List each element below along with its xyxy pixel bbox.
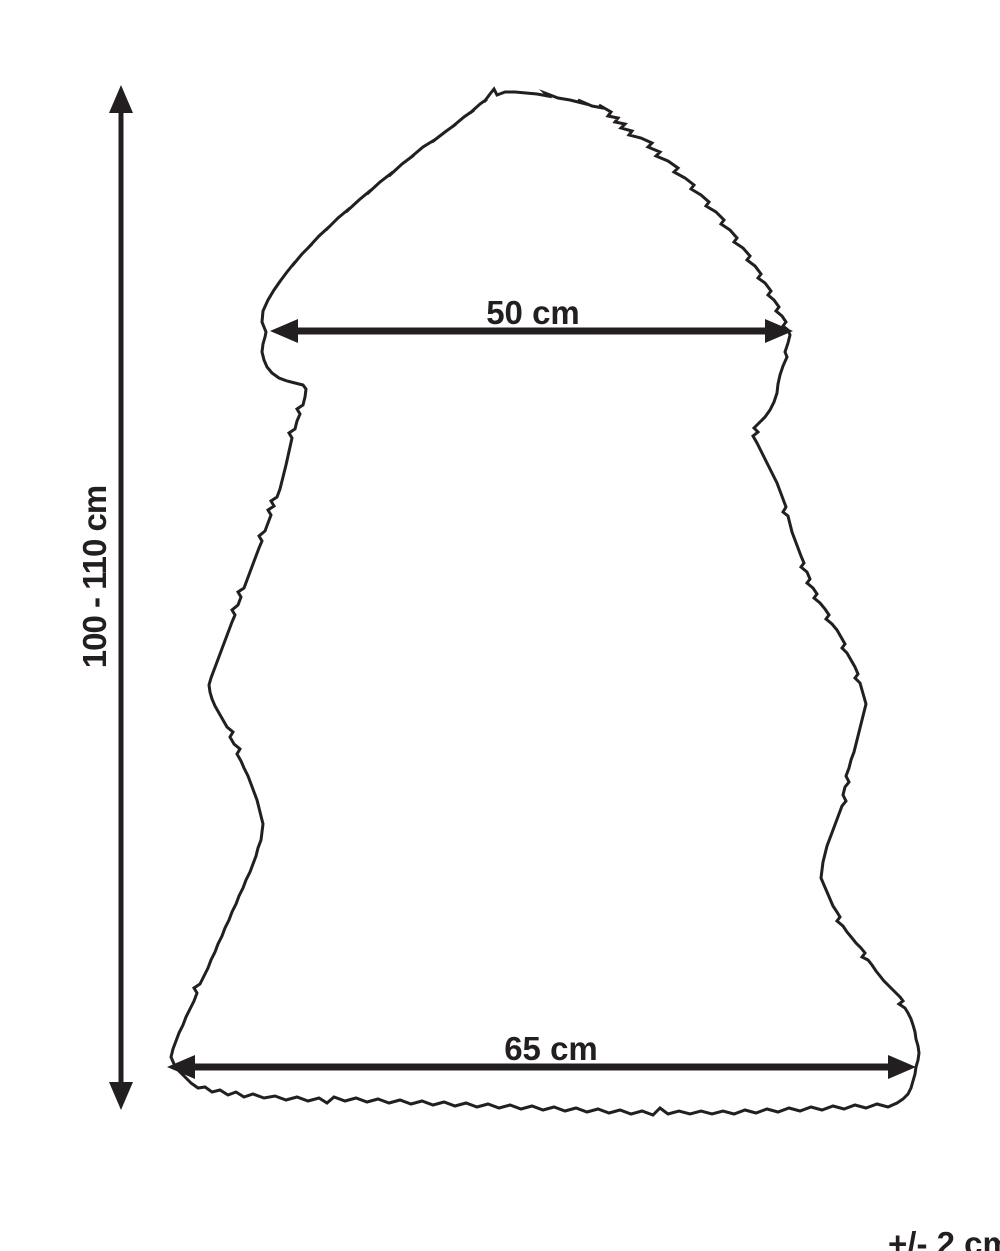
height-arrow-head-up xyxy=(109,85,133,113)
height-label: 100 - 110 cm xyxy=(75,427,115,727)
rug-outline xyxy=(171,89,919,1115)
tolerance-label: +/- 2 cm xyxy=(888,1227,1000,1251)
top-width-label: 50 cm xyxy=(433,296,633,329)
dimension-diagram: 50 cm 65 cm 100 - 110 cm +/- 2 cm xyxy=(0,0,1000,1251)
bottom-width-arrow-head-right xyxy=(888,1055,916,1079)
top-width-arrow-head-left xyxy=(270,319,298,343)
height-arrow-head-down xyxy=(109,1082,133,1110)
bottom-width-label: 65 cm xyxy=(451,1032,651,1065)
